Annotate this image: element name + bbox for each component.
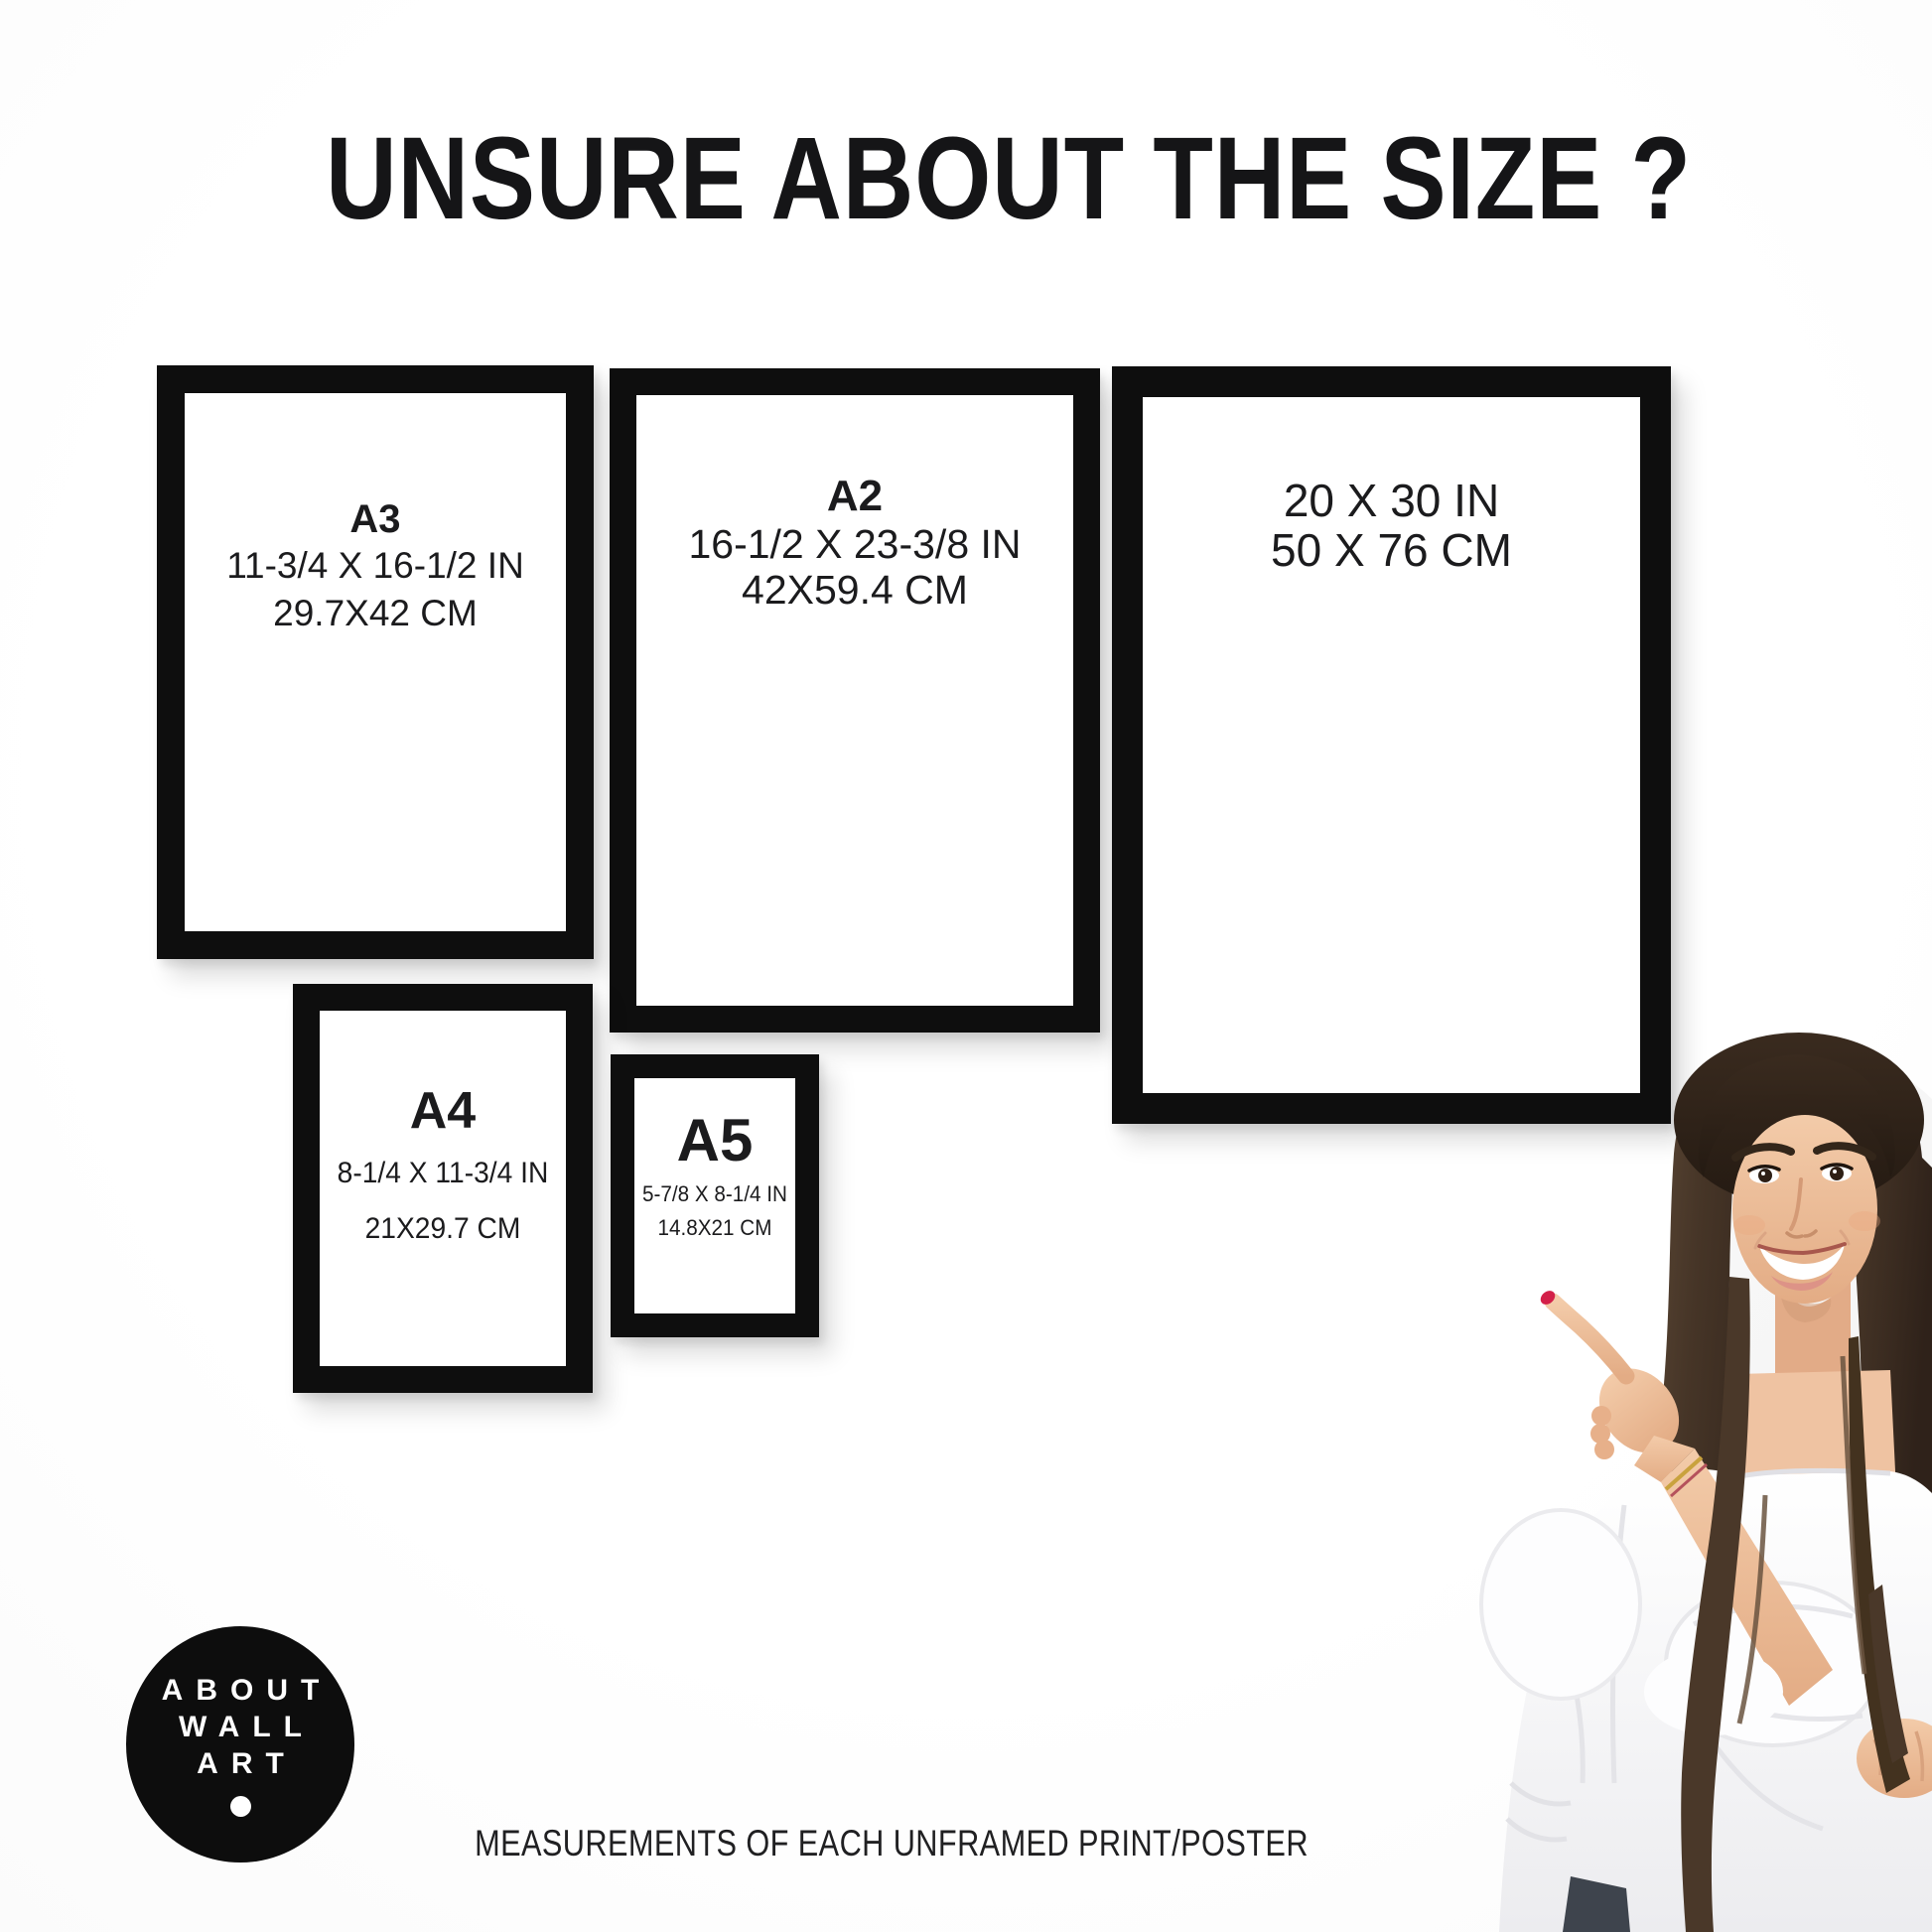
brand-logo-dot <box>230 1796 251 1817</box>
frame-a2-label: A2 <box>610 472 1100 521</box>
frame-a5-size-cm: 14.8X21 CM <box>617 1215 812 1241</box>
frame-a5: A5 5-7/8 X 8-1/4 IN 14.8X21 CM <box>611 1054 819 1337</box>
brand-logo-line-1: ABOUT <box>149 1672 333 1709</box>
frame-a3: A3 11-3/4 X 16-1/2 IN 29.7X42 CM <box>157 365 594 959</box>
frame-a5-text: A5 5-7/8 X 8-1/4 IN 14.8X21 CM <box>611 1110 819 1249</box>
frame-a2-size-inches: 16-1/2 X 23-3/8 IN <box>610 521 1100 567</box>
frame-a5-label: A5 <box>611 1110 819 1172</box>
index-finger <box>1553 1302 1626 1376</box>
frame-a2-text: A2 16-1/2 X 23-3/8 IN 42X59.4 CM <box>610 472 1100 613</box>
frame-20x30-text: 20 X 30 IN 50 X 76 CM <box>1112 476 1671 575</box>
woman-photo <box>1416 1029 1932 1932</box>
frame-a3-size-inches: 11-3/4 X 16-1/2 IN <box>157 542 594 590</box>
frame-20x30-size-cm: 50 X 76 CM <box>1112 525 1671 575</box>
frame-20x30-size-inches: 20 X 30 IN <box>1112 476 1671 525</box>
frame-a4-text: A4 8-1/4 X 11-3/4 IN 21X29.7 CM <box>293 1083 593 1268</box>
frame-a5-size-inches: 5-7/8 X 8-1/4 IN <box>617 1181 812 1207</box>
frame-a4-size-inches: 8-1/4 X 11-3/4 IN <box>302 1157 584 1190</box>
frame-a3-size-cm: 29.7X42 CM <box>157 590 594 637</box>
frame-a4: A4 8-1/4 X 11-3/4 IN 21X29.7 CM <box>293 984 593 1393</box>
frame-a3-label: A3 <box>157 496 594 542</box>
frame-a2-size-cm: 42X59.4 CM <box>610 567 1100 613</box>
page-title: UNSURE ABOUT THE SIZE ? <box>326 111 1692 246</box>
frame-a4-label: A4 <box>293 1083 593 1139</box>
frame-a3-text: A3 11-3/4 X 16-1/2 IN 29.7X42 CM <box>157 496 594 637</box>
bottom-caption: MEASUREMENTS OF EACH UNFRAMED PRINT/POST… <box>475 1823 1309 1864</box>
frame-a4-size-cm: 21X29.7 CM <box>302 1212 584 1246</box>
brand-logo-line-2: WALL <box>166 1709 315 1745</box>
size-guide-poster: UNSURE ABOUT THE SIZE ? A3 11-3/4 X 16-1… <box>0 0 1932 1932</box>
frame-a2: A2 16-1/2 X 23-3/8 IN 42X59.4 CM <box>610 368 1100 1033</box>
frame-20x30: 20 X 30 IN 50 X 76 CM <box>1112 366 1671 1124</box>
brand-logo-line-3: ART <box>184 1745 297 1782</box>
frame-a3-paper <box>185 393 566 931</box>
brand-logo: ABOUT WALL ART <box>126 1626 354 1863</box>
